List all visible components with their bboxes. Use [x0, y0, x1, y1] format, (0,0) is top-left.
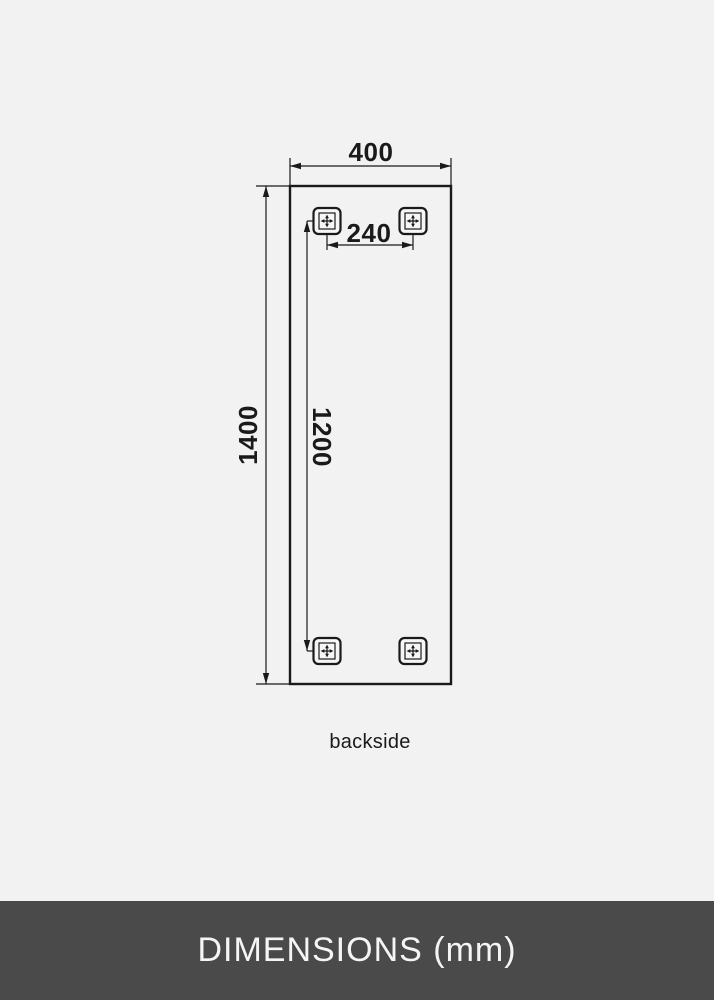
dimension-height: 1400: [233, 186, 290, 684]
height-dimension-label: 1400: [233, 405, 263, 465]
diagram-caption: backside: [329, 731, 410, 753]
dimension-bracket-spacing-vertical: 1200: [304, 221, 337, 651]
arrowhead-up: [304, 221, 310, 232]
arrowhead-up: [263, 186, 269, 197]
arrowhead-right: [440, 163, 451, 169]
product-dimension-sheet: 400 1400 1200 240: [0, 0, 714, 1000]
arrowhead-down: [263, 673, 269, 684]
mounting-bracket-top-right: [400, 208, 427, 234]
arrowhead-right: [402, 242, 413, 248]
bracket-spacing-vertical-label: 1200: [307, 407, 337, 467]
mounting-bracket-bottom-right: [400, 638, 427, 664]
bracket-spacing-horizontal-label: 240: [347, 218, 392, 248]
footer-bar: DIMENSIONS (mm): [0, 901, 714, 1000]
mirror-dimension-diagram: 400 1400 1200 240: [0, 0, 714, 901]
arrowhead-left: [290, 163, 301, 169]
mounting-bracket-top-left: [314, 208, 341, 234]
arrowhead-down: [304, 640, 310, 651]
arrowhead-left: [327, 242, 338, 248]
footer-title: DIMENSIONS (mm): [197, 931, 516, 970]
mounting-bracket-bottom-left: [314, 638, 341, 664]
width-dimension-label: 400: [349, 137, 394, 167]
dimension-width: 400: [290, 137, 451, 186]
